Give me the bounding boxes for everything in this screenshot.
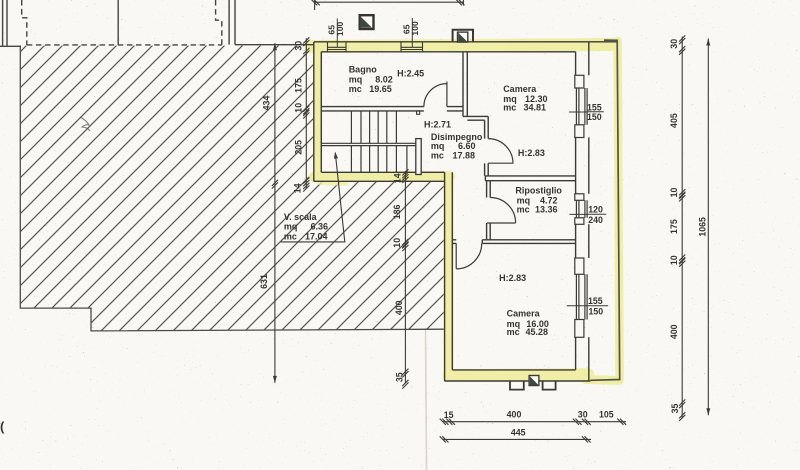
svg-text:400: 400 bbox=[669, 324, 679, 339]
svg-text:100: 100 bbox=[410, 21, 420, 36]
svg-text:35: 35 bbox=[670, 404, 680, 414]
svg-text:mc: mc bbox=[507, 327, 520, 337]
svg-text:34.81: 34.81 bbox=[523, 102, 546, 112]
svg-text:H:2.71: H:2.71 bbox=[424, 119, 451, 129]
svg-text:17.04: 17.04 bbox=[305, 232, 328, 242]
svg-text:150: 150 bbox=[589, 306, 604, 316]
svg-text:631: 631 bbox=[259, 274, 269, 289]
svg-text:mq: mq bbox=[349, 74, 363, 84]
svg-text:205: 205 bbox=[293, 140, 303, 155]
svg-text:240: 240 bbox=[588, 215, 603, 225]
svg-text:mc: mc bbox=[431, 151, 444, 161]
svg-text:mq: mq bbox=[284, 222, 298, 232]
svg-text:445: 445 bbox=[511, 427, 526, 437]
svg-text:186: 186 bbox=[392, 204, 402, 219]
svg-text:Camera: Camera bbox=[503, 84, 537, 94]
svg-text:mc: mc bbox=[503, 102, 516, 112]
svg-text:1065: 1065 bbox=[697, 217, 707, 237]
svg-text:10: 10 bbox=[293, 103, 303, 113]
svg-text:15: 15 bbox=[444, 410, 454, 420]
svg-text:175: 175 bbox=[293, 78, 303, 93]
svg-text:434: 434 bbox=[261, 96, 271, 111]
svg-text:10: 10 bbox=[392, 238, 402, 248]
svg-text:V. scala: V. scala bbox=[284, 212, 318, 222]
svg-text:155: 155 bbox=[587, 102, 602, 112]
svg-text:Camera: Camera bbox=[507, 309, 541, 319]
svg-text:6.60: 6.60 bbox=[458, 141, 476, 151]
svg-text:mc: mc bbox=[349, 84, 362, 94]
svg-text:10: 10 bbox=[669, 188, 679, 198]
svg-text:mc: mc bbox=[284, 232, 297, 242]
svg-text:Ripostiglio: Ripostiglio bbox=[515, 185, 562, 195]
svg-text:14: 14 bbox=[292, 183, 302, 193]
svg-text:155: 155 bbox=[588, 296, 603, 306]
svg-text:13.36: 13.36 bbox=[535, 205, 558, 215]
svg-text:30: 30 bbox=[669, 39, 679, 49]
svg-text:30: 30 bbox=[578, 410, 588, 420]
svg-text:175: 175 bbox=[669, 219, 679, 234]
svg-text:105: 105 bbox=[599, 410, 614, 420]
svg-text:mc: mc bbox=[517, 205, 530, 215]
svg-text:405: 405 bbox=[669, 113, 679, 128]
svg-text:30: 30 bbox=[293, 41, 303, 51]
svg-text:17.88: 17.88 bbox=[452, 151, 475, 161]
svg-text:6.36: 6.36 bbox=[310, 222, 328, 232]
svg-text:400: 400 bbox=[394, 300, 404, 315]
svg-text:100: 100 bbox=[335, 22, 345, 37]
svg-text:120: 120 bbox=[588, 205, 603, 215]
svg-text:mq: mq bbox=[431, 141, 445, 151]
svg-text:10: 10 bbox=[669, 255, 679, 265]
svg-text:8.02: 8.02 bbox=[375, 74, 393, 84]
svg-text:Bagno: Bagno bbox=[349, 64, 378, 74]
svg-text:H:2.83: H:2.83 bbox=[499, 273, 526, 283]
svg-text:(: ( bbox=[0, 419, 5, 434]
svg-text:H:2.45: H:2.45 bbox=[397, 69, 424, 79]
svg-text:150: 150 bbox=[587, 112, 602, 122]
svg-text:19.65: 19.65 bbox=[369, 84, 392, 94]
svg-text:35: 35 bbox=[395, 372, 405, 382]
svg-text:45.28: 45.28 bbox=[525, 327, 548, 337]
svg-text:H:2.83: H:2.83 bbox=[518, 148, 545, 158]
svg-text:400: 400 bbox=[507, 410, 522, 420]
